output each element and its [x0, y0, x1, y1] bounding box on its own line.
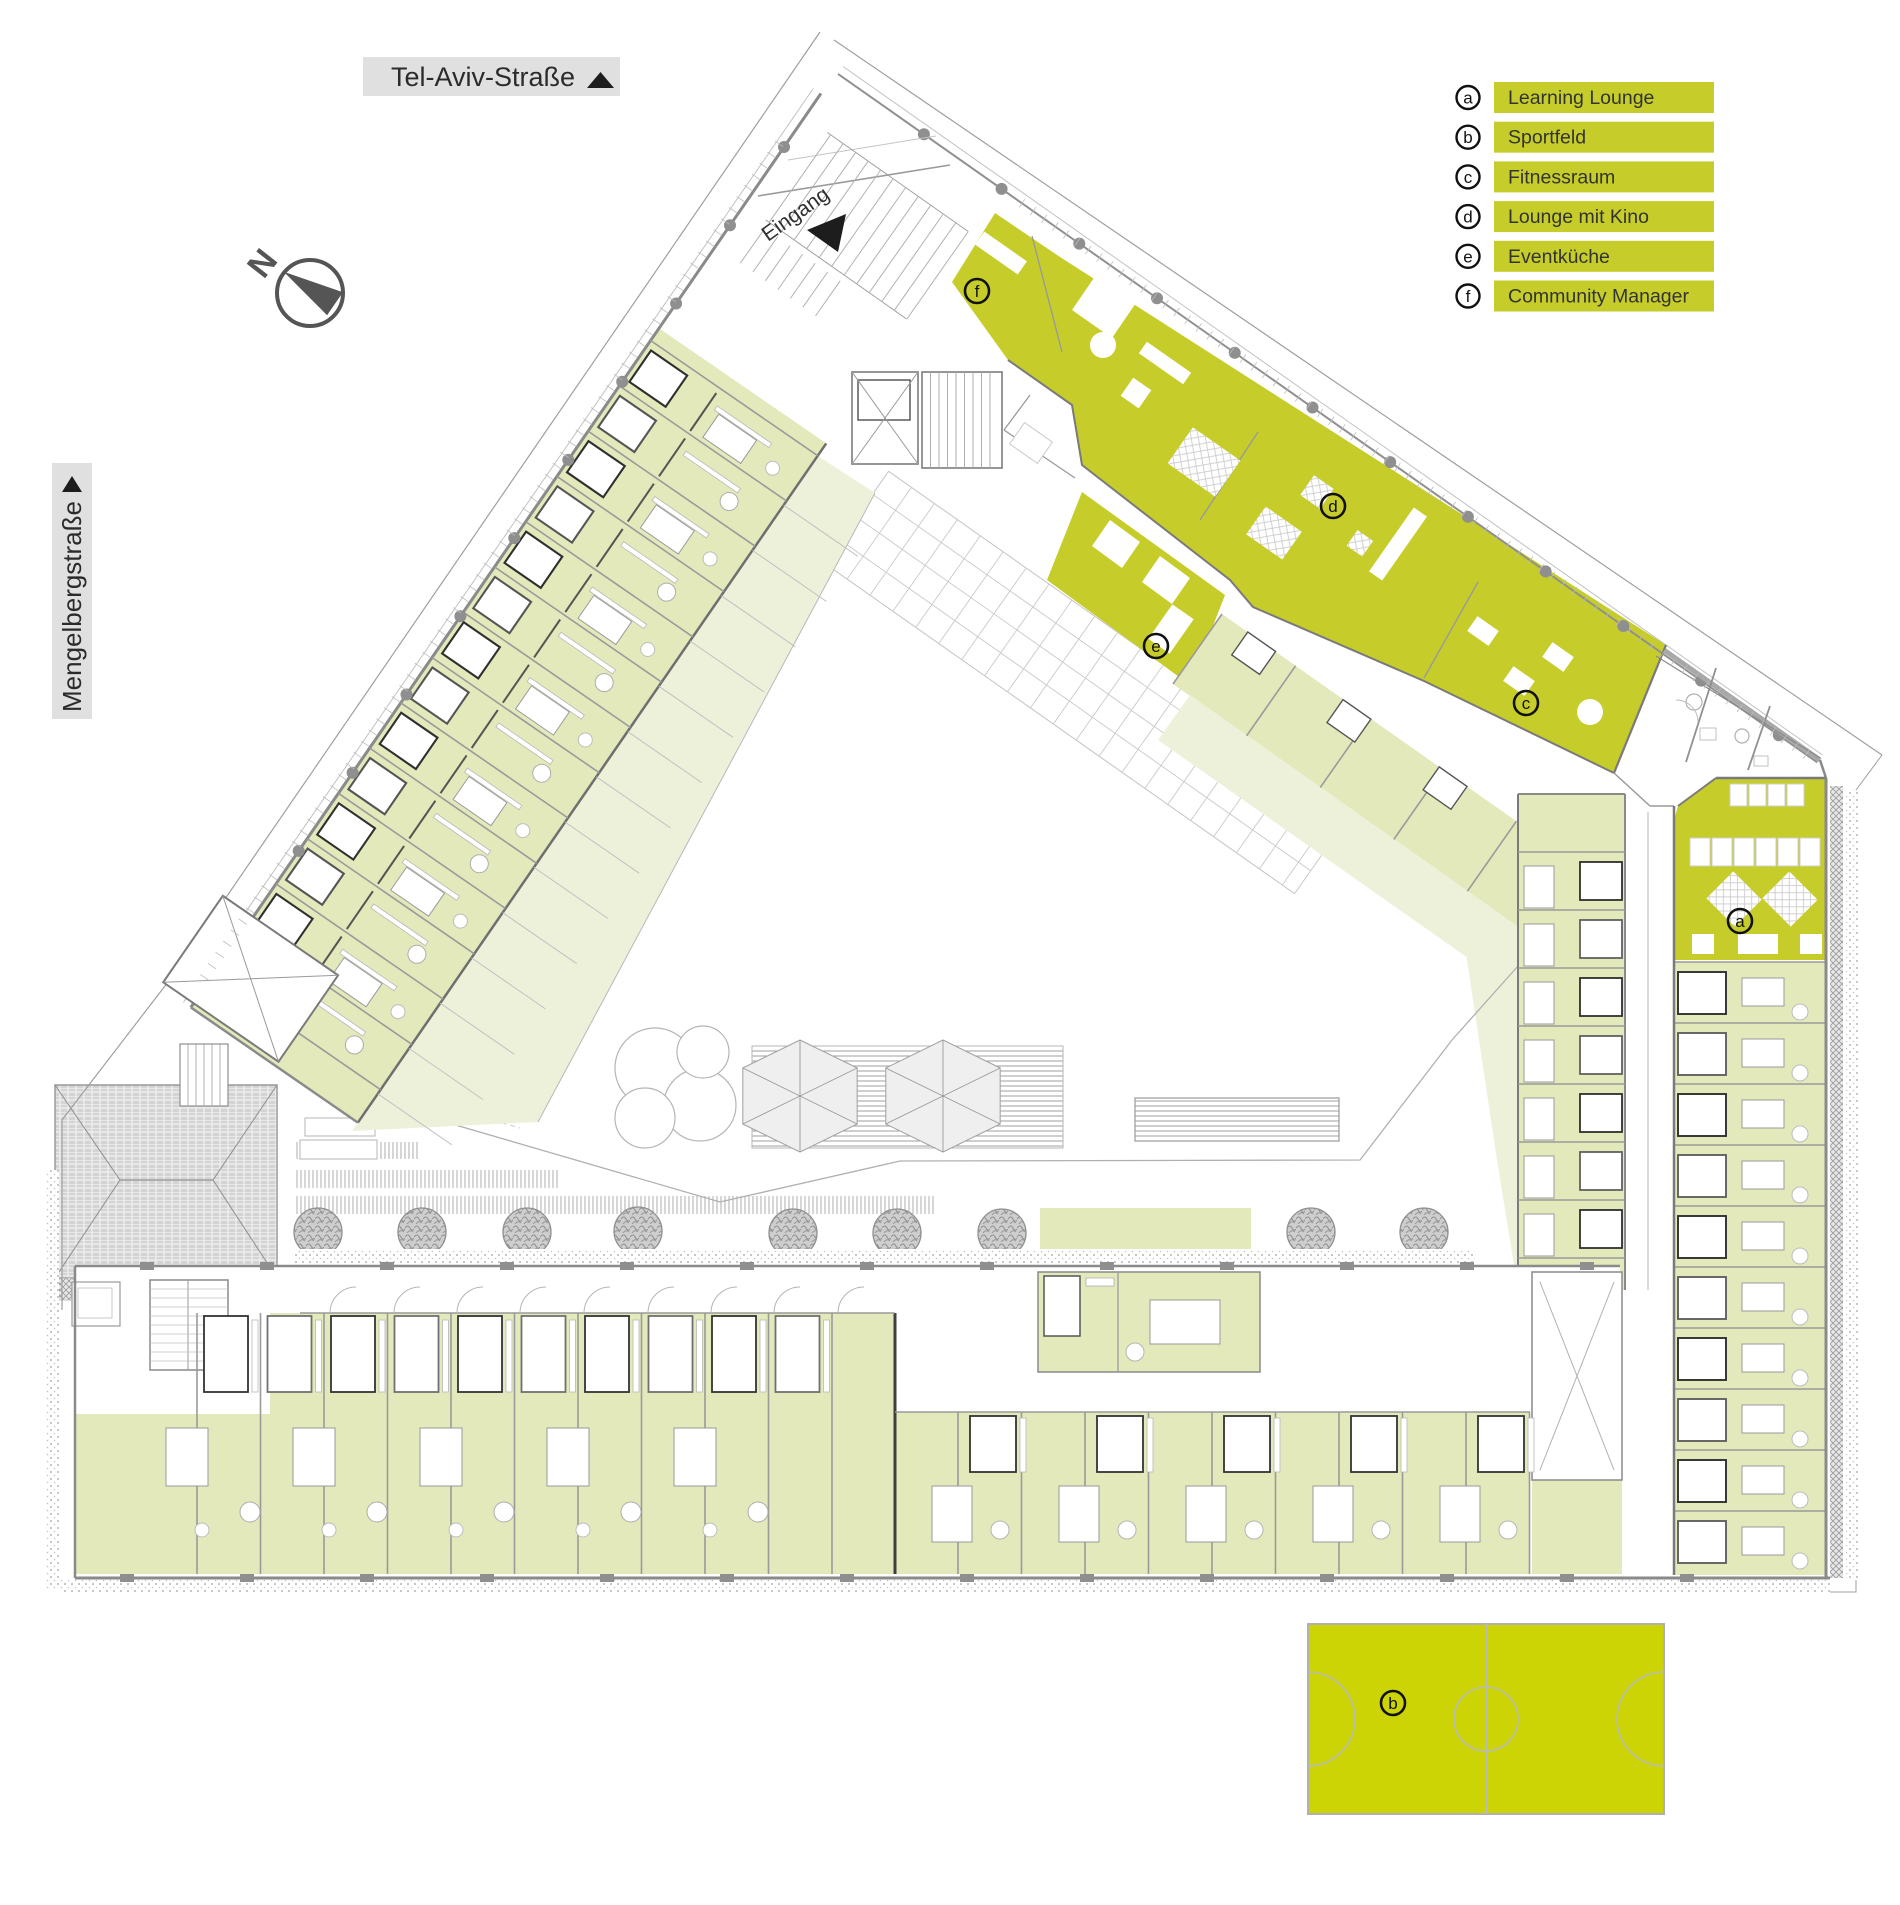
svg-text:Eventküche: Eventküche: [1508, 246, 1610, 268]
svg-text:Lounge mit Kino: Lounge mit Kino: [1508, 206, 1649, 228]
svg-text:c: c: [1522, 694, 1531, 713]
svg-text:b: b: [1463, 128, 1472, 147]
svg-text:e: e: [1151, 637, 1160, 656]
svg-text:d: d: [1328, 497, 1337, 516]
svg-text:d: d: [1463, 208, 1472, 227]
svg-text:Tel-Aviv-Straße: Tel-Aviv-Straße: [391, 62, 575, 92]
svg-text:Sportfeld: Sportfeld: [1508, 127, 1586, 149]
svg-text:Community Manager: Community Manager: [1508, 286, 1689, 308]
svg-text:a: a: [1735, 912, 1745, 931]
svg-text:Learning Lounge: Learning Lounge: [1508, 87, 1654, 109]
svg-text:Mengelbergstraße: Mengelbergstraße: [57, 501, 87, 712]
svg-text:f: f: [1466, 287, 1471, 306]
svg-text:c: c: [1464, 168, 1473, 187]
svg-text:b: b: [1388, 1694, 1397, 1713]
svg-text:Fitnessraum: Fitnessraum: [1508, 166, 1615, 188]
svg-text:f: f: [975, 282, 980, 301]
svg-text:a: a: [1463, 89, 1473, 108]
svg-text:e: e: [1463, 247, 1472, 266]
